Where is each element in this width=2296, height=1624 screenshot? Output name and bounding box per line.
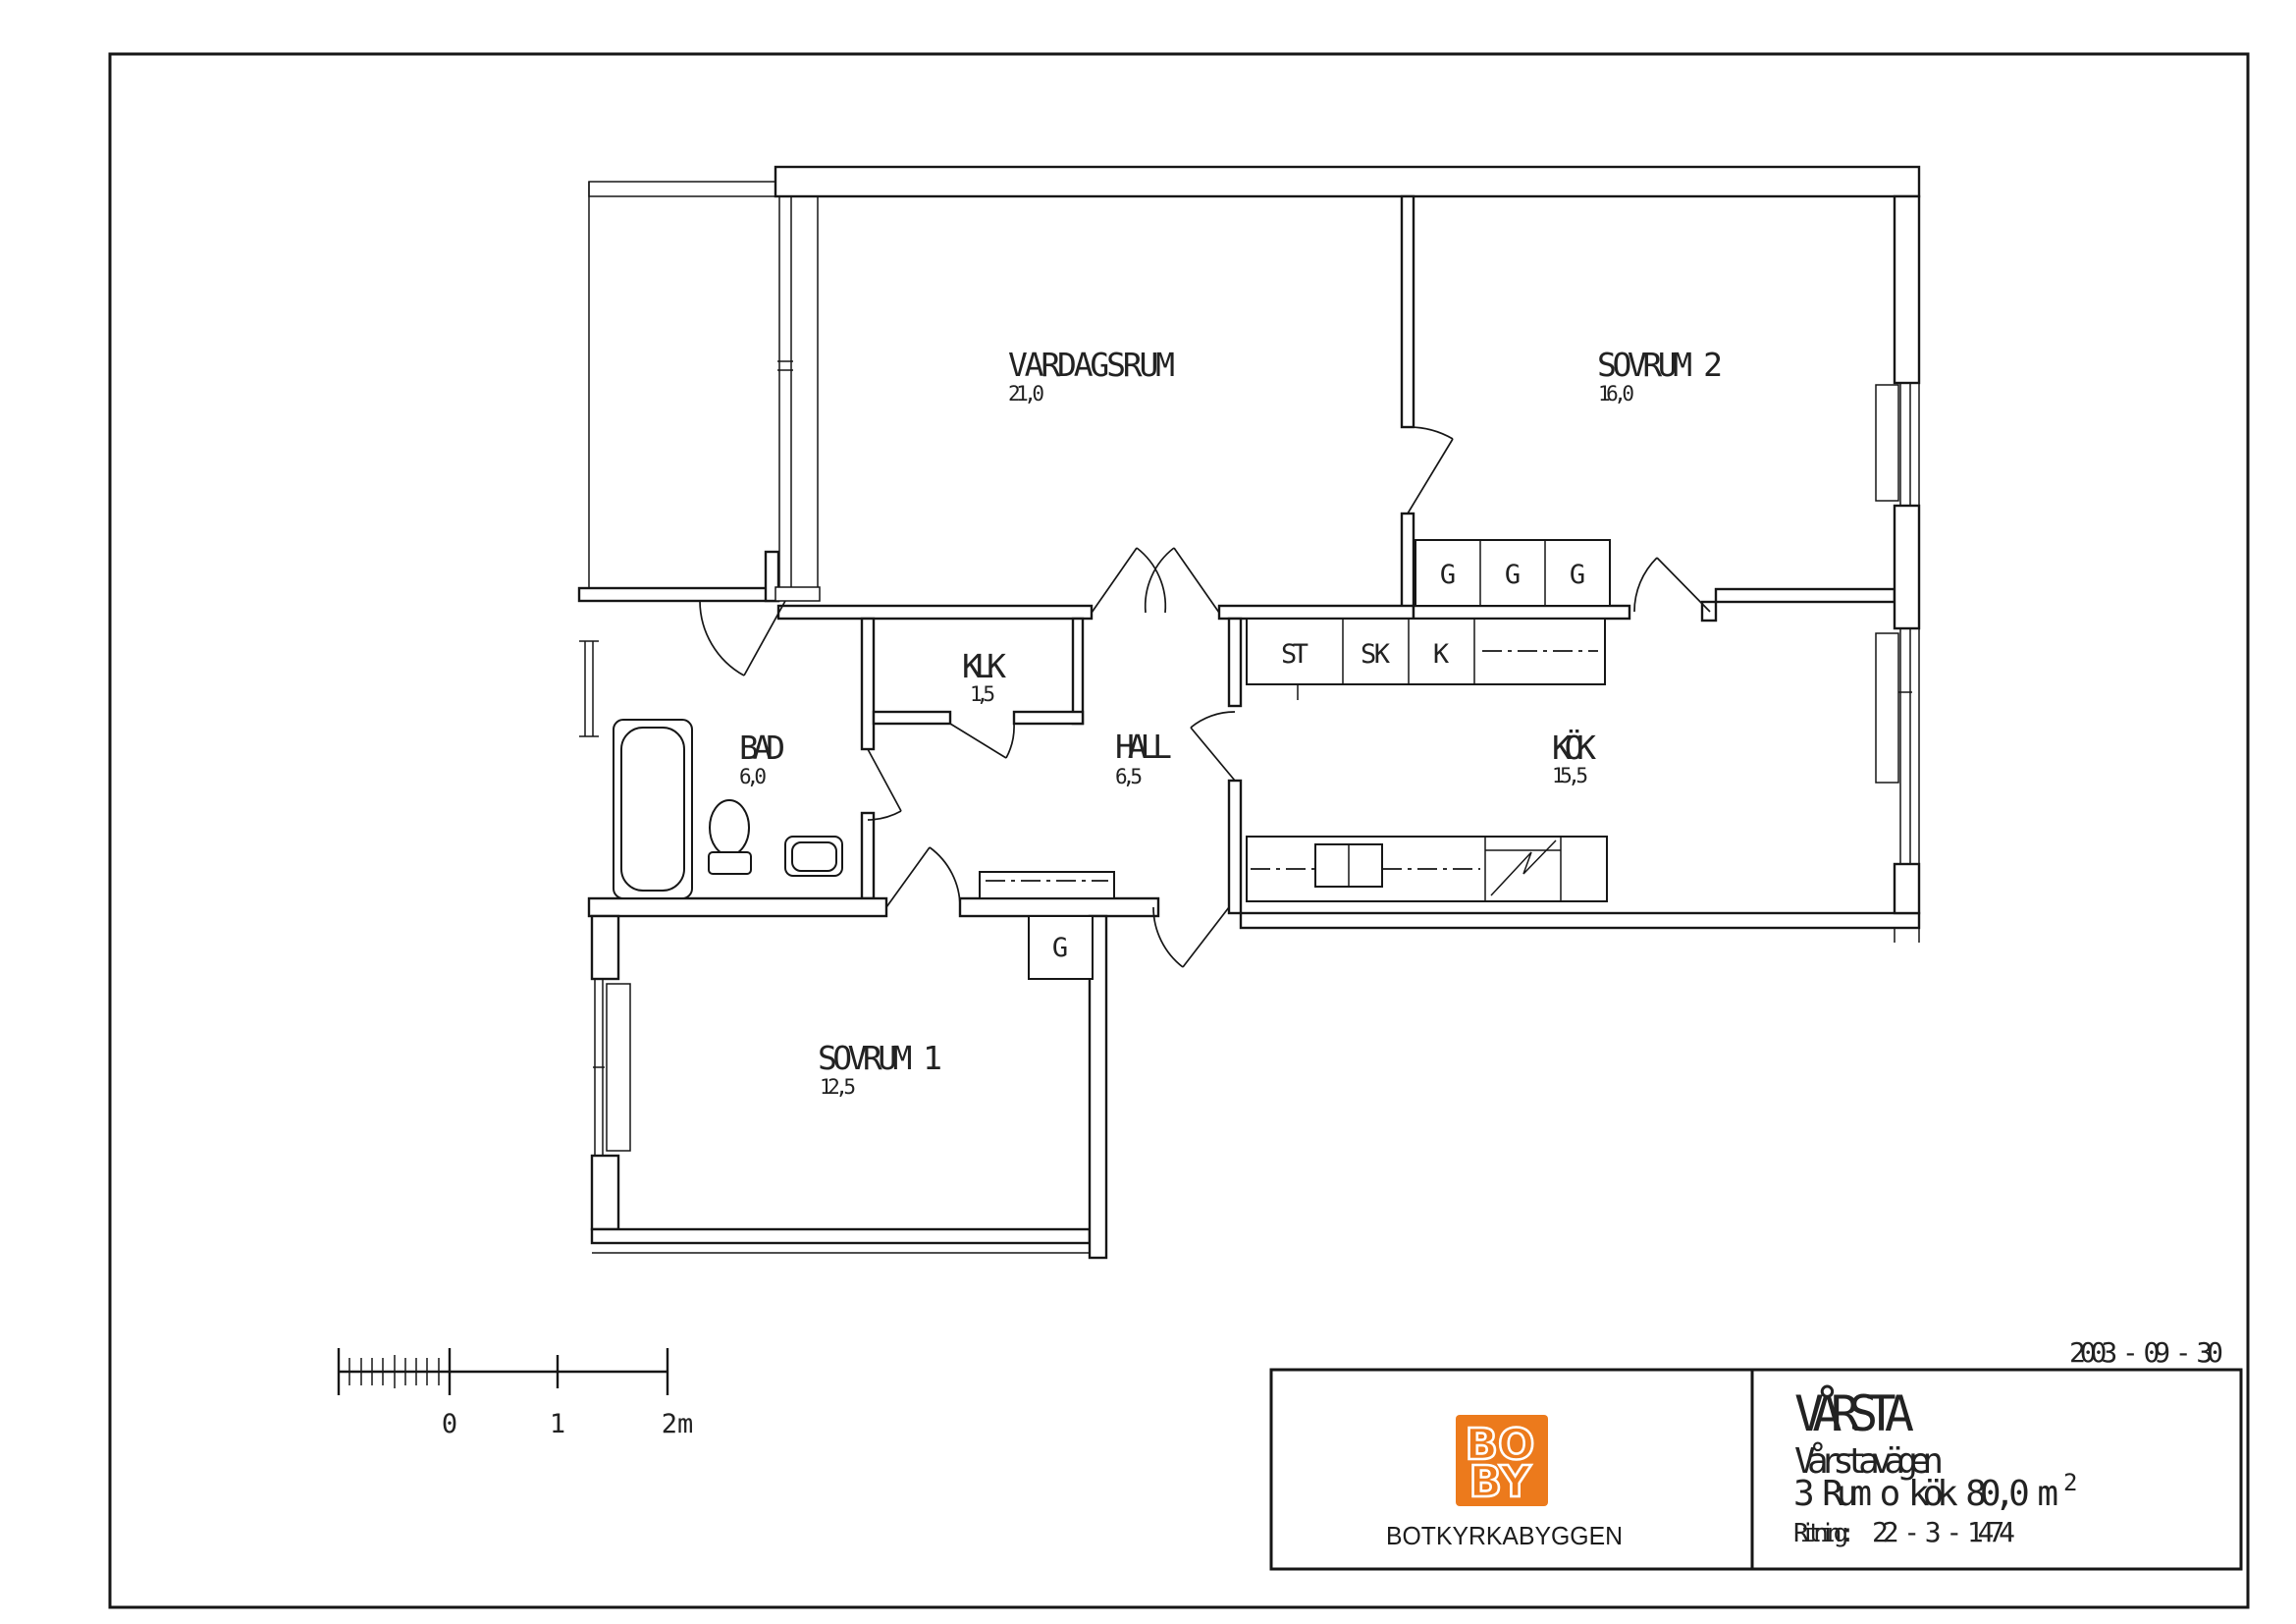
exterior-top-wall [775,167,1919,196]
room-name: VARDAGSRUM [1008,346,1175,384]
wall-sovrum2-kok-right [1716,589,1895,602]
wall-hall-bottom-left [589,898,886,916]
logo-text-bottom: BY [1469,1457,1532,1507]
exterior-right-wall-lower [1895,864,1919,913]
window-sovrum2 [1876,383,1919,506]
wall-sovrum2-kok-left [1414,606,1629,619]
radiator-sovrum1 [607,984,630,1151]
wall-klk-bottom-left [874,712,950,724]
room-area: 6,5 [1115,765,1143,788]
drawing-date: 2003 - 09 - 30 [2069,1336,2223,1369]
cabinet-row-kitchen: ST SK K [1247,619,1605,700]
room-name: SOVRUM 2 [1597,346,1723,384]
bathtub [614,720,692,898]
terrace-top-wall [589,182,775,196]
wall-klk-right [1073,619,1083,724]
bathroom-fixtures [614,720,842,898]
drawing-number: 22 - 3 - 1474 [1872,1516,2015,1548]
window-bad [579,641,599,736]
kitchen-sink [1315,844,1382,887]
radiator-sovrum2 [1876,385,1898,501]
door-bad [868,749,901,820]
company-logo: BO BY [1456,1415,1548,1507]
exterior-right-wall-mid [1895,506,1919,628]
room-name: SOVRUM 1 [818,1039,942,1077]
scale-label-1: 1 [550,1409,565,1439]
title-block: BO BY BOTKYRKABYGGEN VÅRSTA Vårstavägen … [1271,1370,2241,1569]
floor-plan: G G G ST SK K G [0,0,2296,1624]
door-sovrum2-kok [1634,558,1710,612]
apartment-layout: 3 Rum o kök 80,0 m [1793,1474,2058,1514]
wall-vardagsrum-sovrum2-upper [1402,196,1414,427]
window-vardagsrum-west [775,196,820,601]
closet-label: G [1570,560,1585,590]
closet-sovrum1: G [1029,916,1093,979]
room-area: 15,5 [1552,764,1588,787]
door-entry [1153,907,1229,967]
room-area: 1,5 [970,682,995,706]
drawing-sheet: G G G ST SK K G [0,0,2296,1624]
closet-label: ST [1281,639,1308,670]
scale-bar: 0 1 2m [339,1348,693,1439]
wall-hall-top-right [1219,606,1414,619]
hall-wardrobe [980,872,1114,898]
scale-label-2m: 2m [662,1409,694,1439]
closet-label: G [1052,933,1068,963]
door-vardagsrum-double [1092,548,1219,613]
exterior-right-wall-upper [1895,196,1919,383]
closet-row-sovrum2: G G G [1415,540,1610,606]
door-kok-hall [1191,712,1235,781]
wall-sovrum1-left-lower [592,1156,618,1229]
company-name: BOTKYRKABYGGEN [1386,1521,1623,1550]
wall-sovrum1-left-upper [592,916,618,979]
door-klk [950,724,1014,758]
scale-label-0: 0 [442,1409,457,1439]
wall-kok-left-upper [1229,619,1241,706]
door-balcony [700,601,785,676]
room-area: 21,0 [1008,382,1044,406]
closet-label: G [1440,560,1456,590]
wall-kok-left-lower [1229,781,1241,913]
wall-sovrum1-bottom [592,1229,1090,1243]
wall-bad-top [579,588,778,601]
closet-label: SK [1361,639,1391,670]
wall-kok-bottom [1241,913,1919,928]
toilet [709,800,751,874]
door-sovrum1 [886,847,960,907]
sheet-border [110,54,2248,1607]
window-kok [1876,628,1919,864]
project-name: VÅRSTA [1794,1385,1914,1442]
wall-hall-bottom-right [960,898,1158,916]
washbasin [785,837,842,876]
closet-label: K [1433,639,1450,670]
room-area: 16,0 [1598,382,1634,406]
closet-label: G [1505,560,1521,590]
room-name: BAD [739,729,785,767]
wall-bad-right-lower [862,813,874,898]
room-name: KÖK [1552,728,1596,767]
room-name: HALL [1115,728,1172,766]
radiator-kok [1876,633,1898,783]
room-area: 12,5 [820,1075,856,1099]
kitchen-counter [1247,837,1607,901]
drawing-number-label: Ritning: [1793,1519,1855,1548]
window-sovrum1 [592,979,630,1156]
door-sovrum2-vardagsrum [1408,427,1453,514]
square-meter-superscript: 2 [2063,1469,2077,1496]
wall-vardagsrum-sovrum2-lower [1402,514,1414,619]
wall-klk-bottom-right [1014,712,1083,724]
room-area: 6,0 [739,765,767,788]
wall-bad-right-upper [862,619,874,749]
room-name: KLK [962,647,1006,685]
wall-hall-top-left [778,606,1092,619]
